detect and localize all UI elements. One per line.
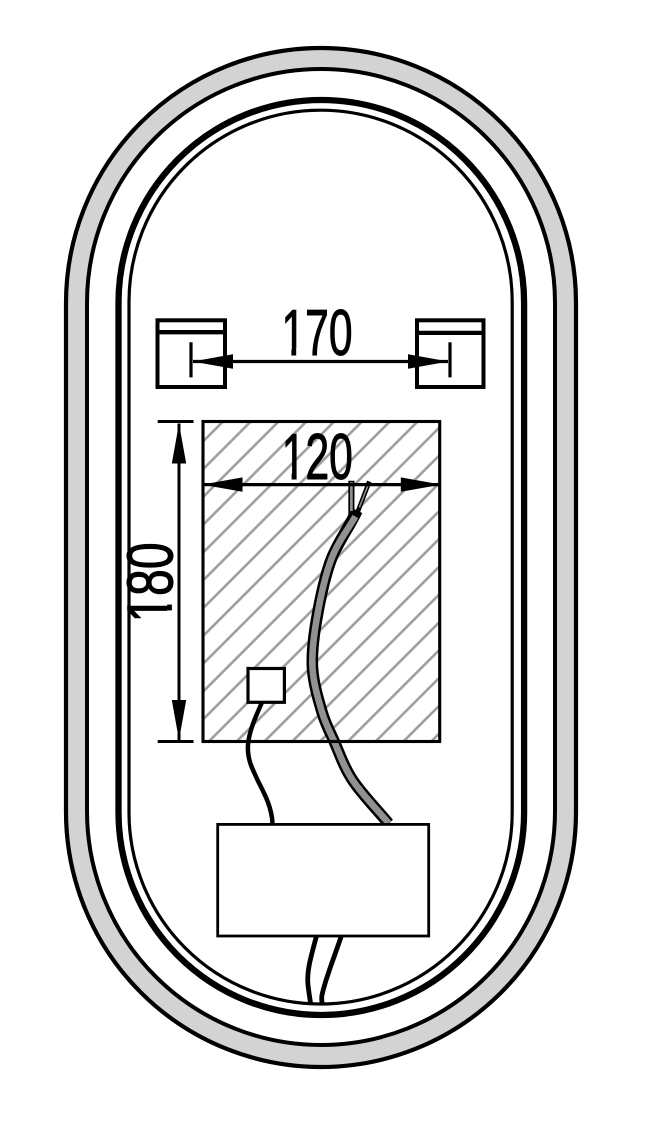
svg-text:180: 180 <box>114 543 187 623</box>
svg-text:170: 170 <box>282 296 353 369</box>
svg-text:120: 120 <box>282 420 353 493</box>
